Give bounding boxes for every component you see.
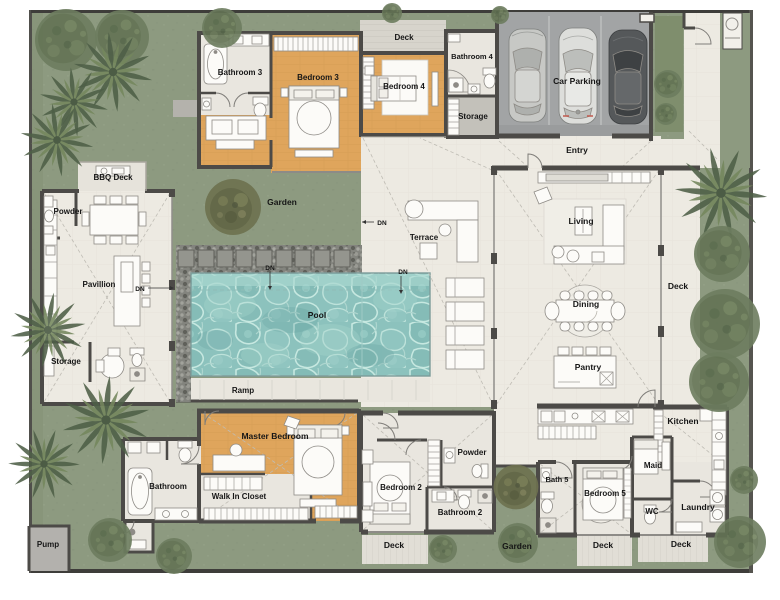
svg-text:Master Bedroom: Master Bedroom [241, 431, 309, 441]
svg-text:Garden: Garden [502, 541, 532, 551]
svg-text:Garden: Garden [267, 197, 297, 207]
svg-text:Bath 5: Bath 5 [546, 475, 569, 484]
svg-text:Maid: Maid [644, 461, 662, 470]
svg-text:Bathroom 3: Bathroom 3 [218, 68, 263, 77]
svg-text:Deck: Deck [384, 540, 405, 550]
svg-text:Entry: Entry [566, 145, 588, 155]
svg-text:Pavillion: Pavillion [83, 280, 116, 289]
svg-text:DN: DN [398, 269, 408, 276]
svg-text:Dining: Dining [573, 299, 599, 309]
svg-text:Bathroom: Bathroom [149, 482, 187, 491]
svg-text:WC: WC [645, 507, 659, 516]
svg-text:Storage: Storage [458, 112, 488, 121]
svg-text:Bedroom 3: Bedroom 3 [297, 73, 339, 82]
svg-text:Car Parking: Car Parking [553, 76, 601, 86]
svg-text:DN: DN [135, 286, 145, 293]
svg-text:Ramp: Ramp [232, 386, 254, 395]
svg-text:Deck: Deck [593, 540, 614, 550]
svg-text:Laundry: Laundry [681, 502, 715, 512]
svg-text:Powder: Powder [54, 207, 83, 216]
svg-text:DN: DN [377, 220, 387, 227]
svg-text:Bedroom 4: Bedroom 4 [383, 82, 425, 91]
svg-text:Bathroom 4: Bathroom 4 [451, 52, 494, 61]
svg-text:Living: Living [568, 216, 593, 226]
svg-text:BBQ Deck: BBQ Deck [93, 173, 133, 182]
svg-text:Powder: Powder [458, 448, 487, 457]
svg-text:Bedroom 5: Bedroom 5 [584, 489, 626, 498]
svg-text:Deck: Deck [671, 539, 692, 549]
svg-text:Bathroom 2: Bathroom 2 [438, 508, 483, 517]
svg-text:DN: DN [265, 265, 275, 272]
svg-text:Pantry: Pantry [575, 362, 602, 372]
svg-text:Pool: Pool [308, 310, 326, 320]
svg-text:Pump: Pump [37, 540, 59, 549]
svg-text:Storage: Storage [51, 357, 81, 366]
svg-text:Walk In Closet: Walk In Closet [212, 492, 267, 501]
svg-text:Deck: Deck [394, 33, 414, 42]
svg-text:Kitchen: Kitchen [667, 416, 698, 426]
svg-text:Terrace: Terrace [410, 233, 439, 242]
svg-text:Deck: Deck [668, 281, 689, 291]
svg-text:Bedroom 2: Bedroom 2 [380, 483, 422, 492]
